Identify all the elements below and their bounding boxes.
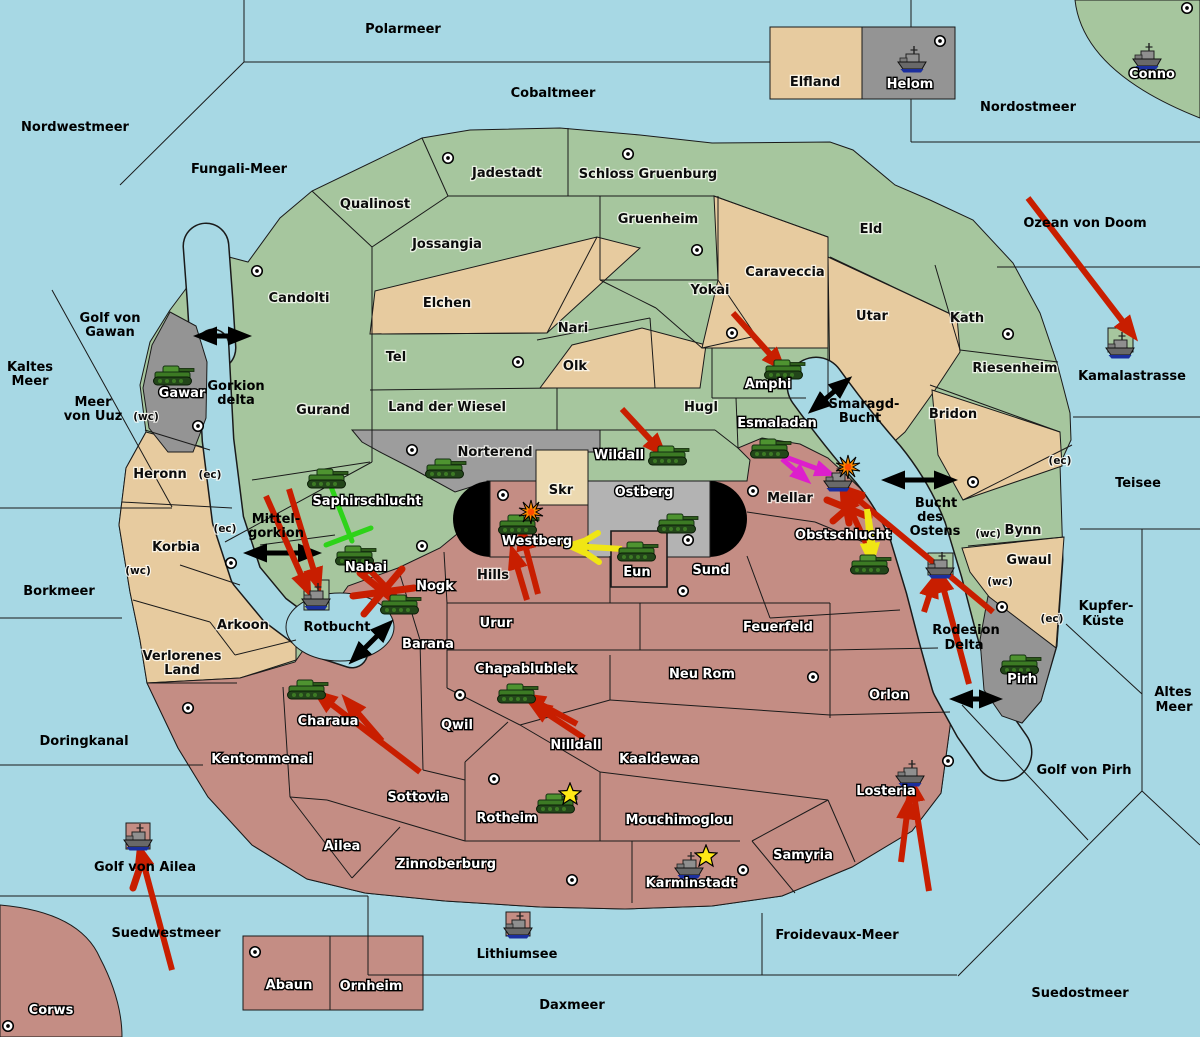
territory-label-eld: Eld — [860, 222, 883, 237]
supply-center-gruenheim — [692, 245, 703, 256]
territory-label-esmaladan: Esmaladan — [737, 416, 817, 431]
territory-label-qualinost: Qualinost — [340, 197, 410, 212]
region-ornheim-box[interactable] — [330, 936, 423, 1010]
sea-label-kaltes: Kaltes — [7, 360, 53, 375]
territory-label-pirh: Pirh — [1007, 672, 1037, 687]
territory-label-heronn: Heronn — [133, 467, 187, 482]
territory-label-corws: Corws — [29, 1003, 74, 1018]
territory-label-qwil: Qwil — [441, 718, 473, 733]
sea-label-golf-von-ailea: Golf von Ailea — [94, 860, 196, 875]
supply-center-westberg — [498, 490, 509, 501]
sea-label-k-ste: Küste — [1082, 614, 1124, 629]
coast-label-3--wc-: (wc) — [125, 565, 151, 577]
territory-label-nilldall: Nilldall — [550, 738, 601, 753]
territory-label-jossangia: Jossangia — [411, 237, 482, 252]
sea-label-des: des — [917, 510, 943, 525]
sea-label-borkmeer: Borkmeer — [23, 584, 95, 599]
territory-label-schloss-gruenburg: Schloss Gruenburg — [579, 167, 717, 182]
supply-center-helom — [935, 36, 946, 47]
sea-label-delta: Delta — [944, 638, 983, 653]
territory-label-mellar: Mellar — [767, 491, 813, 506]
territory-label-losteria: Losteria — [856, 784, 916, 799]
sea-label-suedostmeer: Suedostmeer — [1031, 986, 1129, 1001]
territory-label-zinnoberburg: Zinnoberburg — [396, 857, 496, 872]
sea-label-nordostmeer: Nordostmeer — [980, 100, 1077, 115]
game-map-stage: PolarmeerCobaltmeerNordwestmeerNordostme… — [0, 0, 1200, 1037]
supply-center-zinnoberburg — [567, 875, 578, 886]
coast-label-0--wc-: (wc) — [133, 411, 159, 423]
territory-label-riesenheim: Riesenheim — [972, 361, 1057, 376]
supply-center-schloss-gruenburg — [623, 149, 634, 160]
supply-center-neu-rom — [808, 672, 819, 683]
supply-center-norterend — [407, 445, 418, 456]
sea-label-fungali-meer: Fungali-Meer — [191, 162, 288, 177]
supply-center-rotheim — [489, 774, 500, 785]
sea-label-nordwestmeer: Nordwestmeer — [21, 120, 129, 135]
territory-label-neu-rom: Neu Rom — [669, 667, 735, 682]
supply-center-sund — [678, 586, 689, 597]
territory-label-westberg: Westberg — [502, 534, 572, 549]
supply-center-gawar — [193, 421, 204, 432]
sea-label-kamalastrasse: Kamalastrasse — [1078, 369, 1186, 384]
supply-center-jadestadt — [443, 153, 454, 164]
sea-label-ozean-von-doom: Ozean von Doom — [1023, 216, 1146, 231]
territory-label-sund: Sund — [692, 563, 729, 578]
territory-label-nabai: Nabai — [345, 560, 387, 575]
territory-label-land-der-wiesel: Land der Wiesel — [388, 400, 506, 415]
territory-label-verlorenes: Verlorenes — [142, 649, 221, 664]
territory-label-gwaul: Gwaul — [1006, 553, 1051, 568]
territory-label-samyria: Samyria — [773, 848, 833, 863]
territory-label-charaua: Charaua — [298, 714, 359, 729]
territory-label-wildall: Wildall — [594, 448, 644, 463]
territory-label-gurand: Gurand — [296, 403, 350, 418]
territory-label-sottovia: Sottovia — [387, 790, 448, 805]
sea-label-kupfer-: Kupfer- — [1079, 599, 1134, 614]
territory-label-jadestadt: Jadestadt — [471, 166, 542, 181]
territory-label-saphirschlucht: Saphirschlucht — [312, 494, 421, 509]
supply-center-karminstadt — [738, 865, 749, 876]
territory-label-kentommenai: Kentommenai — [211, 752, 312, 767]
territory-label-hugl: Hugl — [684, 400, 718, 415]
coast-label-7--ec-: (ec) — [1041, 613, 1064, 625]
coast-label-4--ec-: (ec) — [1049, 455, 1072, 467]
territory-label-nogk: Nogk — [416, 579, 454, 594]
sea-label-mittel-: Mittel- — [252, 512, 301, 527]
sea-label-rotbucht: Rotbucht — [304, 620, 371, 635]
supply-center-tel — [513, 357, 524, 368]
sea-label-altes: Altes — [1154, 685, 1192, 700]
territory-label-kaaldewaa: Kaaldewaa — [619, 752, 699, 767]
territory-label-nari: Nari — [558, 321, 589, 336]
territory-label-hills: Hills — [477, 568, 509, 583]
territory-label-urur: Urur — [480, 616, 513, 631]
sea-label-meer: Meer — [75, 395, 113, 410]
territory-label-bridon: Bridon — [929, 407, 977, 422]
supply-center-abaun — [250, 947, 261, 958]
sea-label-teisee: Teisee — [1115, 476, 1161, 491]
sea-label-daxmeer: Daxmeer — [539, 998, 605, 1013]
sea-label-golf-von-pirh: Golf von Pirh — [1036, 763, 1131, 778]
territory-label-ornheim: Ornheim — [340, 979, 403, 994]
territory-label-barana: Barana — [402, 637, 454, 652]
sea-label-meer: Meer — [1156, 700, 1194, 715]
territory-label-utar: Utar — [856, 309, 889, 324]
coast-label-6--wc-: (wc) — [987, 576, 1013, 588]
territory-label-abaun: Abaun — [266, 978, 313, 993]
territory-label-norterend: Norterend — [457, 445, 532, 460]
sea-label-von-uuz: von Uuz — [64, 409, 123, 424]
supply-center-candolti — [252, 266, 263, 277]
territory-label-tel: Tel — [386, 350, 406, 365]
sea-label-polarmeer: Polarmeer — [365, 22, 441, 37]
terrain-layer — [0, 0, 1200, 1037]
coast-label-2--ec-: (ec) — [214, 523, 237, 535]
territory-label-elfland: Elfland — [790, 75, 840, 90]
sea-label-meer: Meer — [12, 374, 50, 389]
sea-label-lithiumsee: Lithiumsee — [477, 947, 558, 962]
territory-label-yokai: Yokai — [689, 283, 729, 298]
territory-label-eun: Eun — [623, 565, 650, 580]
territory-label-ailea: Ailea — [324, 839, 361, 854]
supply-center-yokai — [727, 328, 738, 339]
supply-center-conno — [1182, 3, 1193, 14]
sea-label-froidevaux-meer: Froidevaux-Meer — [775, 928, 899, 943]
sea-label-gorkion: gorkion — [248, 526, 304, 541]
territory-label-chapablublek: Chapablublek — [475, 662, 575, 677]
territory-label-feuerfeld: Feuerfeld — [743, 620, 813, 635]
strategy-game-map: PolarmeerCobaltmeerNordwestmeerNordostme… — [0, 0, 1200, 1037]
territory-label-ostberg: Ostberg — [615, 485, 674, 500]
territory-label-candolti: Candolti — [269, 291, 330, 306]
territory-label-kath: Kath — [950, 311, 984, 326]
supply-center-kath — [1003, 329, 1014, 340]
sea-label-delta: delta — [217, 393, 255, 408]
sea-label-bucht: Bucht — [915, 496, 957, 511]
territory-label-land: Land — [164, 663, 200, 678]
territory-label-arkoon: Arkoon — [217, 618, 269, 633]
sea-label-doringkanal: Doringkanal — [39, 734, 128, 749]
territory-label-orlon: Orlon — [869, 688, 909, 703]
supply-center-pirh — [997, 602, 1008, 613]
territory-label-rotheim: Rotheim — [476, 811, 537, 826]
supply-center-losteria — [943, 756, 954, 767]
territory-label-karminstadt: Karminstadt — [646, 876, 737, 891]
territory-label-gawar: Gawar — [159, 386, 206, 401]
territory-label-bynn: Bynn — [1005, 523, 1042, 538]
territory-label-gruenheim: Gruenheim — [618, 212, 698, 227]
supply-center-mellar — [748, 486, 759, 497]
sea-label-cobaltmeer: Cobaltmeer — [511, 86, 596, 101]
territory-label-conno: Conno — [1129, 67, 1175, 82]
territory-label-elchen: Elchen — [423, 296, 471, 311]
sea-label-suedwestmeer: Suedwestmeer — [111, 926, 221, 941]
sea-label-smaragd-: Smaragd- — [829, 397, 900, 412]
territory-label-obstschlucht: Obstschlucht — [795, 528, 891, 543]
supply-center-saphirschlucht — [417, 541, 428, 552]
supply-center-corws — [3, 1021, 14, 1032]
sea-label-rodesion: Rodesion — [932, 623, 999, 638]
coast-label-1--ec-: (ec) — [199, 469, 222, 481]
supply-center-kentommenai — [183, 703, 194, 714]
coast-label-5--wc-: (wc) — [975, 528, 1001, 540]
territory-label-helom: Helom — [887, 77, 934, 92]
sea-label-gawan: Gawan — [85, 325, 134, 340]
sea-label-bucht: Bucht — [839, 411, 881, 426]
territory-label-amphi: Amphi — [745, 377, 792, 392]
yellow-attack-arrow-0 — [574, 546, 622, 549]
territory-label-korbia: Korbia — [152, 540, 200, 555]
supply-center-bridon — [968, 477, 979, 488]
sea-label-ostens: Ostens — [910, 524, 961, 539]
territory-label-skr: Skr — [549, 483, 574, 498]
supply-center-qwil — [455, 690, 466, 701]
territory-label-caraveccia: Caraveccia — [745, 265, 824, 280]
sea-label-gorkion: Gorkion — [207, 379, 264, 394]
territory-label-mouchimoglou: Mouchimoglou — [626, 813, 733, 828]
territory-label-olk: Olk — [563, 359, 588, 374]
supply-center-ostberg — [683, 535, 694, 546]
sea-label-golf-von: Golf von — [80, 311, 141, 326]
supply-center-korbia — [226, 558, 237, 569]
